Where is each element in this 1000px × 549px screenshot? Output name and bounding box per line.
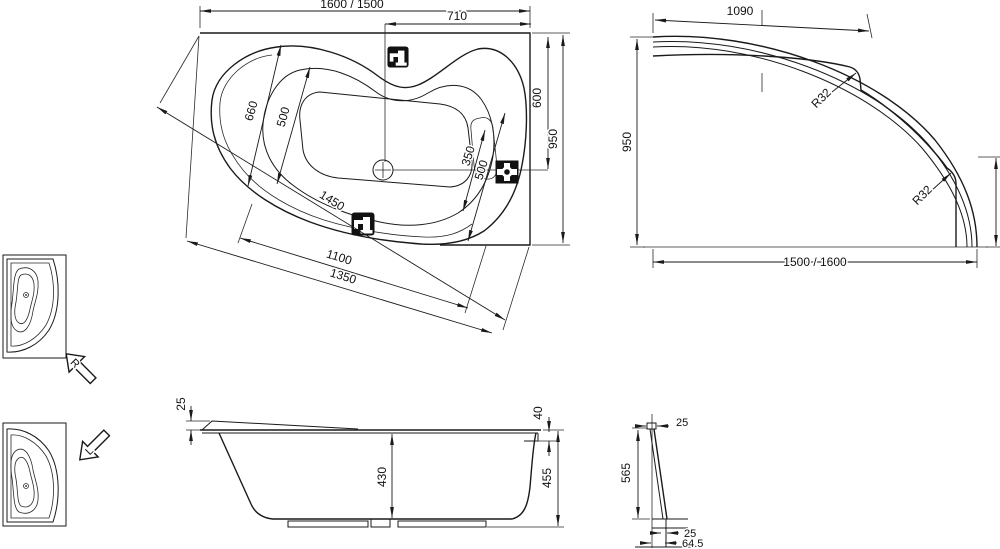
- dim-apron-length: 1500 / 1600: [783, 255, 847, 269]
- technical-drawing: 1600 / 1500 710 660 500 350 500 1450 110…: [0, 0, 1000, 549]
- dim-edge-40: 40: [531, 406, 545, 420]
- variant-r-arrow-icon: R: [58, 346, 100, 388]
- drain-symbol: [373, 160, 393, 180]
- dim-panel-base-645: 64.5: [682, 538, 703, 549]
- dim-front-outer: 1350: [328, 266, 358, 287]
- dim-panel-565: 565: [619, 463, 633, 483]
- dim-rim-25: 25: [174, 397, 188, 411]
- dim-seat-500: 500: [472, 158, 491, 182]
- dim-panel-top-25: 25: [676, 417, 688, 429]
- section-view: 25 40 430 455: [174, 397, 564, 527]
- variant-r-label: R: [68, 357, 82, 371]
- dim-diagonal: 1450: [317, 188, 347, 214]
- dim-width-inner: 500: [274, 105, 293, 128]
- drawing-sheet: 1600 / 1500 710 660 500 350 500 1450 110…: [0, 0, 1000, 549]
- variant-left-thumbnail: [3, 423, 66, 526]
- dim-apron-radius-top: R32: [808, 85, 834, 111]
- faucet-side-icon-mid: [352, 213, 375, 236]
- dim-tap-offset: 710: [447, 9, 467, 23]
- dim-height-455: 455: [540, 468, 554, 488]
- dim-apron-height: 950: [620, 132, 634, 152]
- variant-thumbnails: R L: [3, 255, 114, 526]
- variant-right-thumbnail: [3, 255, 66, 358]
- faucet-side-icon-top: [387, 46, 408, 67]
- dim-width-outer: 660: [242, 99, 261, 122]
- plan-view: 1600 / 1500 710 660 500 350 500 1450 110…: [157, 0, 570, 333]
- faucet-top-icon: [496, 161, 519, 184]
- panel-detail-view: 25 565 25 64.5: [619, 414, 703, 549]
- dim-side-600: 600: [530, 88, 544, 108]
- dim-depth-430: 430: [375, 467, 389, 487]
- variant-l-arrow-icon: L: [72, 425, 114, 467]
- dim-overall-length: 1600 / 1500: [320, 0, 384, 11]
- dim-front-inner: 1100: [325, 247, 354, 268]
- dim-apron-top: 1090: [727, 4, 754, 18]
- apron-view: 1090 950 R32 R32 1500 / 1600: [620, 4, 1000, 269]
- dim-apron-radius-bottom: R32: [909, 182, 935, 208]
- dim-side-950: 950: [546, 129, 560, 149]
